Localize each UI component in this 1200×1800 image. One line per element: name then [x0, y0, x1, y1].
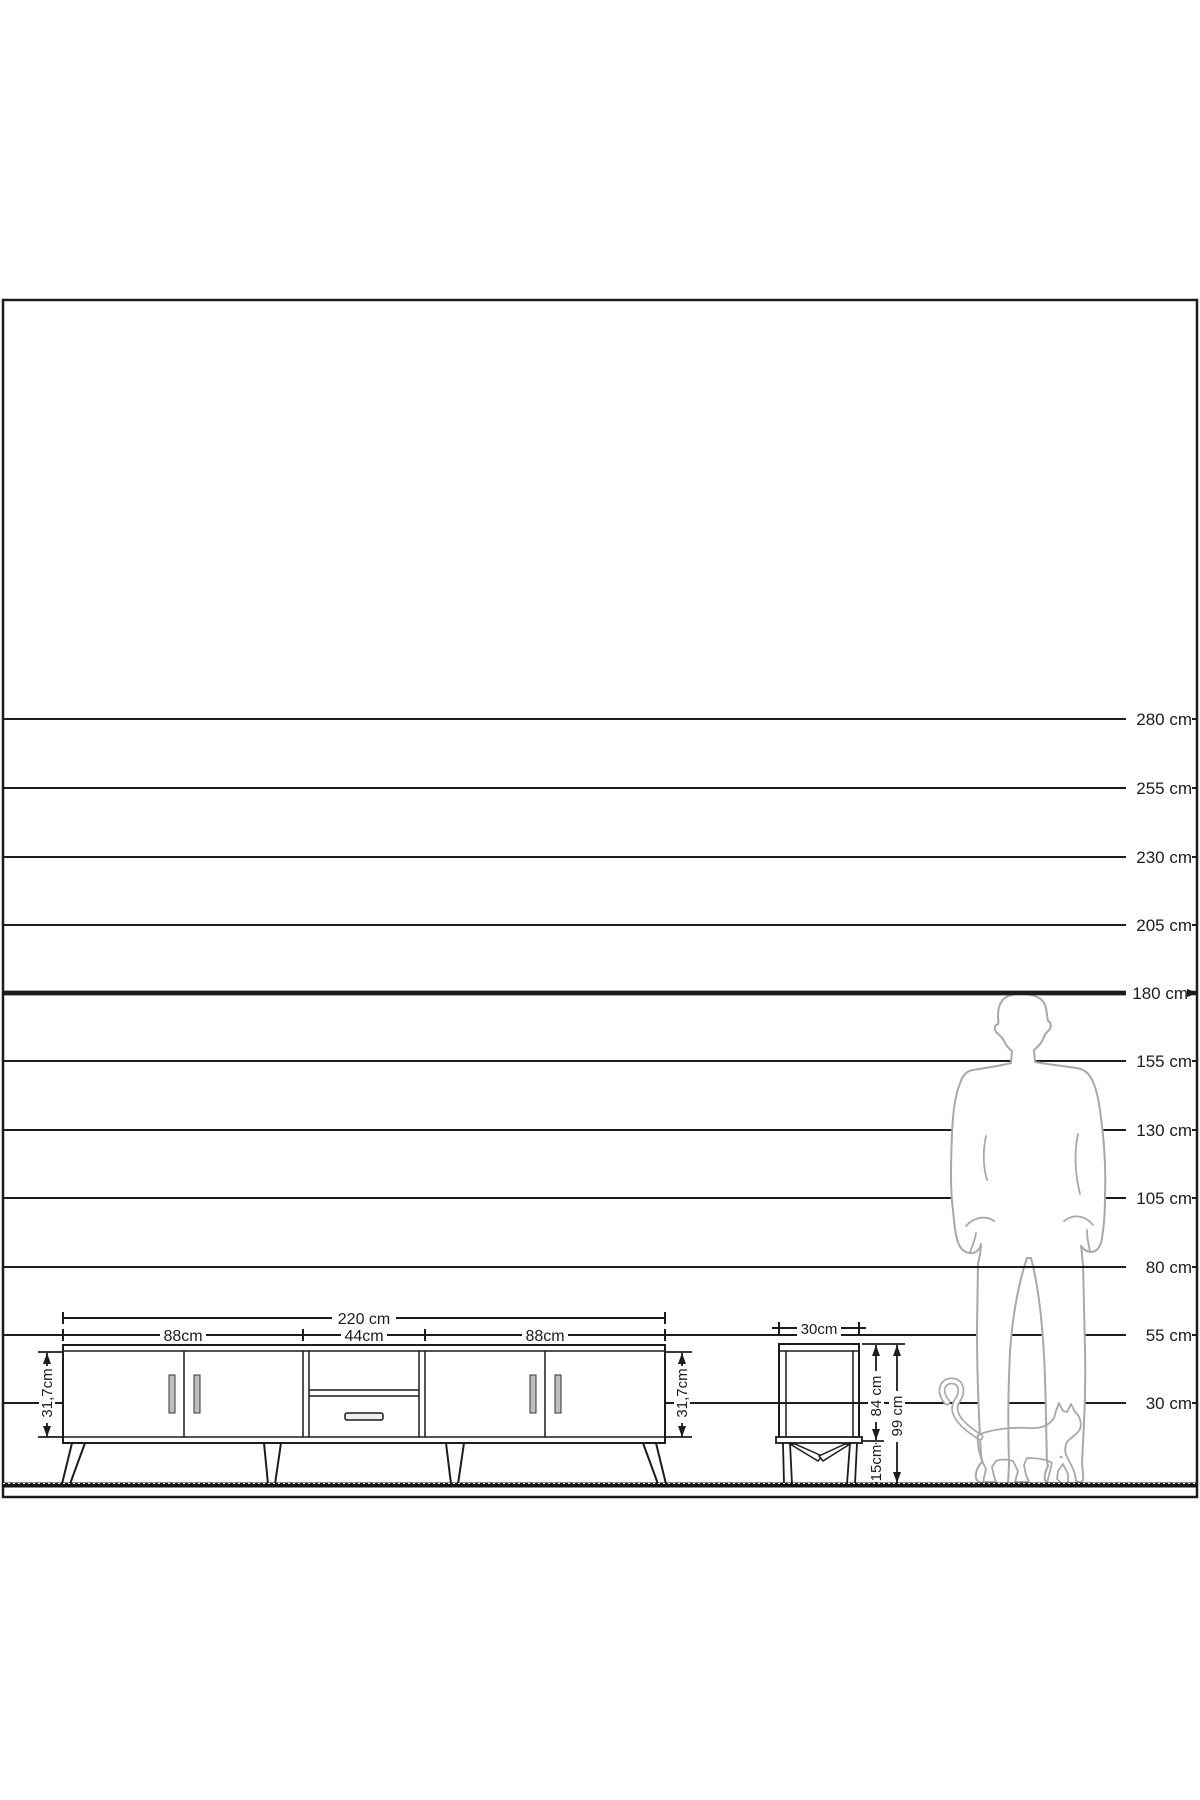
height-label-30cm: 30 cm: [1146, 1394, 1192, 1413]
tv-height-left-label: 31,7cm: [39, 1368, 56, 1417]
door-handle: [169, 1375, 175, 1413]
table-leg-height-label: 15cm: [868, 1445, 885, 1482]
side-table-leg: [783, 1443, 792, 1484]
height-label-105cm: 105 cm: [1136, 1189, 1192, 1208]
table-total-height-label: 99 cm: [889, 1396, 906, 1437]
tv-width-label: 220 cm: [338, 1311, 390, 1328]
tv-section-right-label: 88cm: [525, 1328, 564, 1345]
door-handle: [194, 1375, 200, 1413]
height-label-80cm: 80 cm: [1146, 1258, 1192, 1277]
tv-section-left-label: 88cm: [163, 1328, 202, 1345]
tv-section-middle-label: 44cm: [344, 1328, 383, 1345]
height-label-255cm: 255 cm: [1136, 779, 1192, 798]
door-handle: [555, 1375, 561, 1413]
furniture-height-diagram: 220 cm 88cm 44cm 88cm 31,7cm 31,7cm: [0, 0, 1200, 1800]
height-label-55cm: 55 cm: [1146, 1326, 1192, 1345]
drawer-handle: [345, 1413, 383, 1420]
tv-stand-body: [63, 1345, 665, 1443]
height-label-280cm: 280 cm: [1136, 710, 1192, 729]
height-label-180cm: 180 cm: [1132, 984, 1188, 1003]
height-label-155cm: 155 cm: [1136, 1052, 1192, 1071]
door-handle: [530, 1375, 536, 1413]
height-label-230cm: 230 cm: [1136, 848, 1192, 867]
tv-height-right-label: 31,7cm: [674, 1368, 691, 1417]
table-body-height-label: 84 cm: [868, 1376, 885, 1417]
height-label-205cm: 205 cm: [1136, 916, 1192, 935]
table-width-label: 30cm: [801, 1321, 838, 1338]
diagram-canvas: 220 cm 88cm 44cm 88cm 31,7cm 31,7cm: [0, 0, 1200, 1800]
cat-fur-dot: [1060, 1456, 1063, 1459]
height-label-130cm: 130 cm: [1136, 1121, 1192, 1140]
